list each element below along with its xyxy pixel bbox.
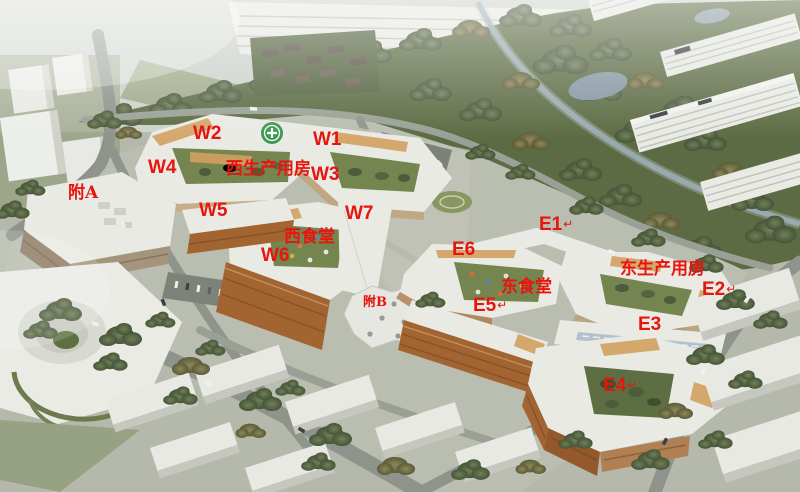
scene-render [0, 0, 800, 492]
aerial-render-stage: W2W1W4西生产用房W3附AW5W7E1↵西食堂E6W6东生产用房东食堂E2↵… [0, 0, 800, 492]
